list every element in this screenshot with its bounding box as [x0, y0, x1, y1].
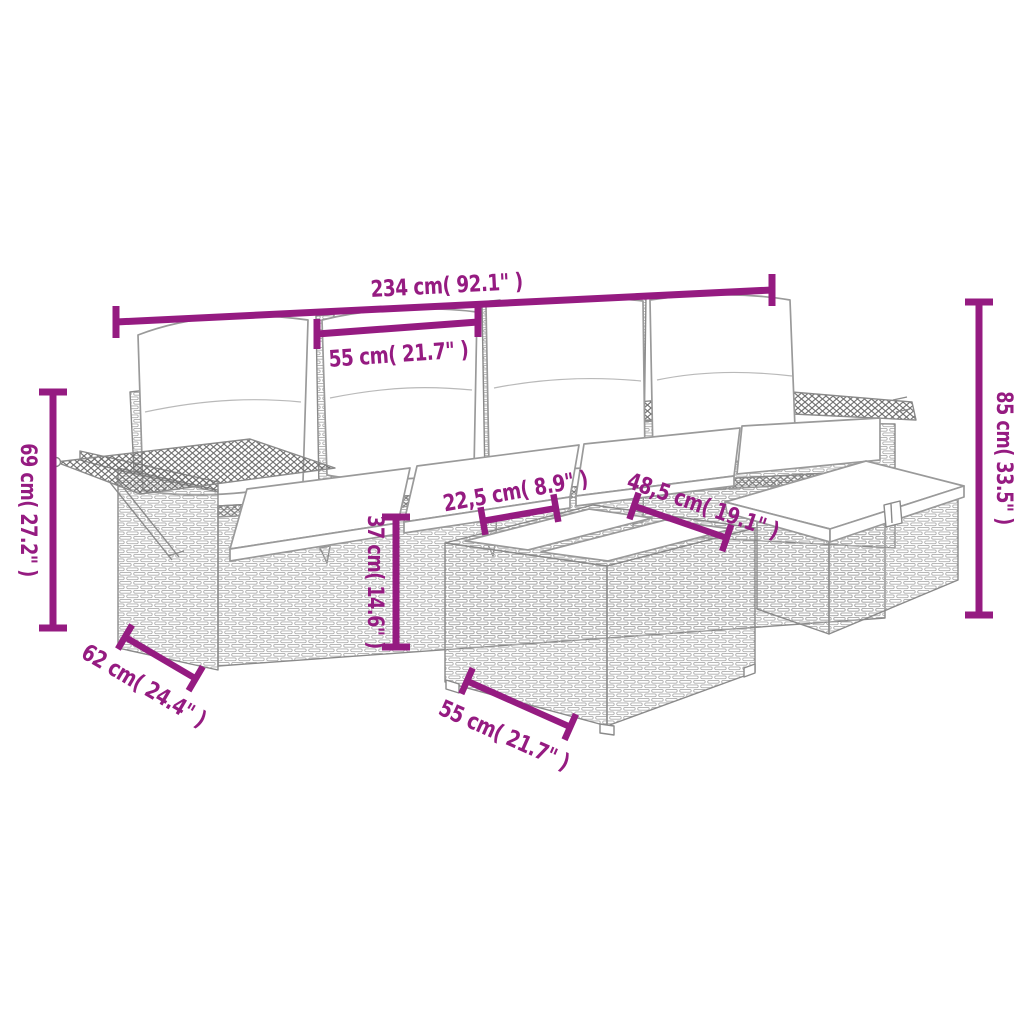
dimension-diagram: 234 cm( 92.1" ) 55 cm( 21.7" ) 69 cm( 27…: [0, 0, 1024, 1024]
dimension-label-total-height: 85 cm( 33.5" ): [991, 391, 1016, 524]
dimension-label-seat-height: 37 cm( 14.6" ): [362, 515, 387, 648]
furniture-diagram-svg: 234 cm( 92.1" ) 55 cm( 21.7" ) 69 cm( 27…: [0, 0, 1024, 1024]
dimension-label-armrest-height: 69 cm( 27.2" ): [15, 443, 40, 576]
dimension-label-overall-width: 234 cm( 92.1" ): [370, 268, 523, 302]
ottoman-clasp: [884, 501, 902, 527]
dimension-armrest-height: 69 cm( 27.2" ): [15, 392, 67, 628]
dimension-total-height: 85 cm( 33.5" ): [965, 302, 1017, 615]
table: [445, 505, 755, 735]
